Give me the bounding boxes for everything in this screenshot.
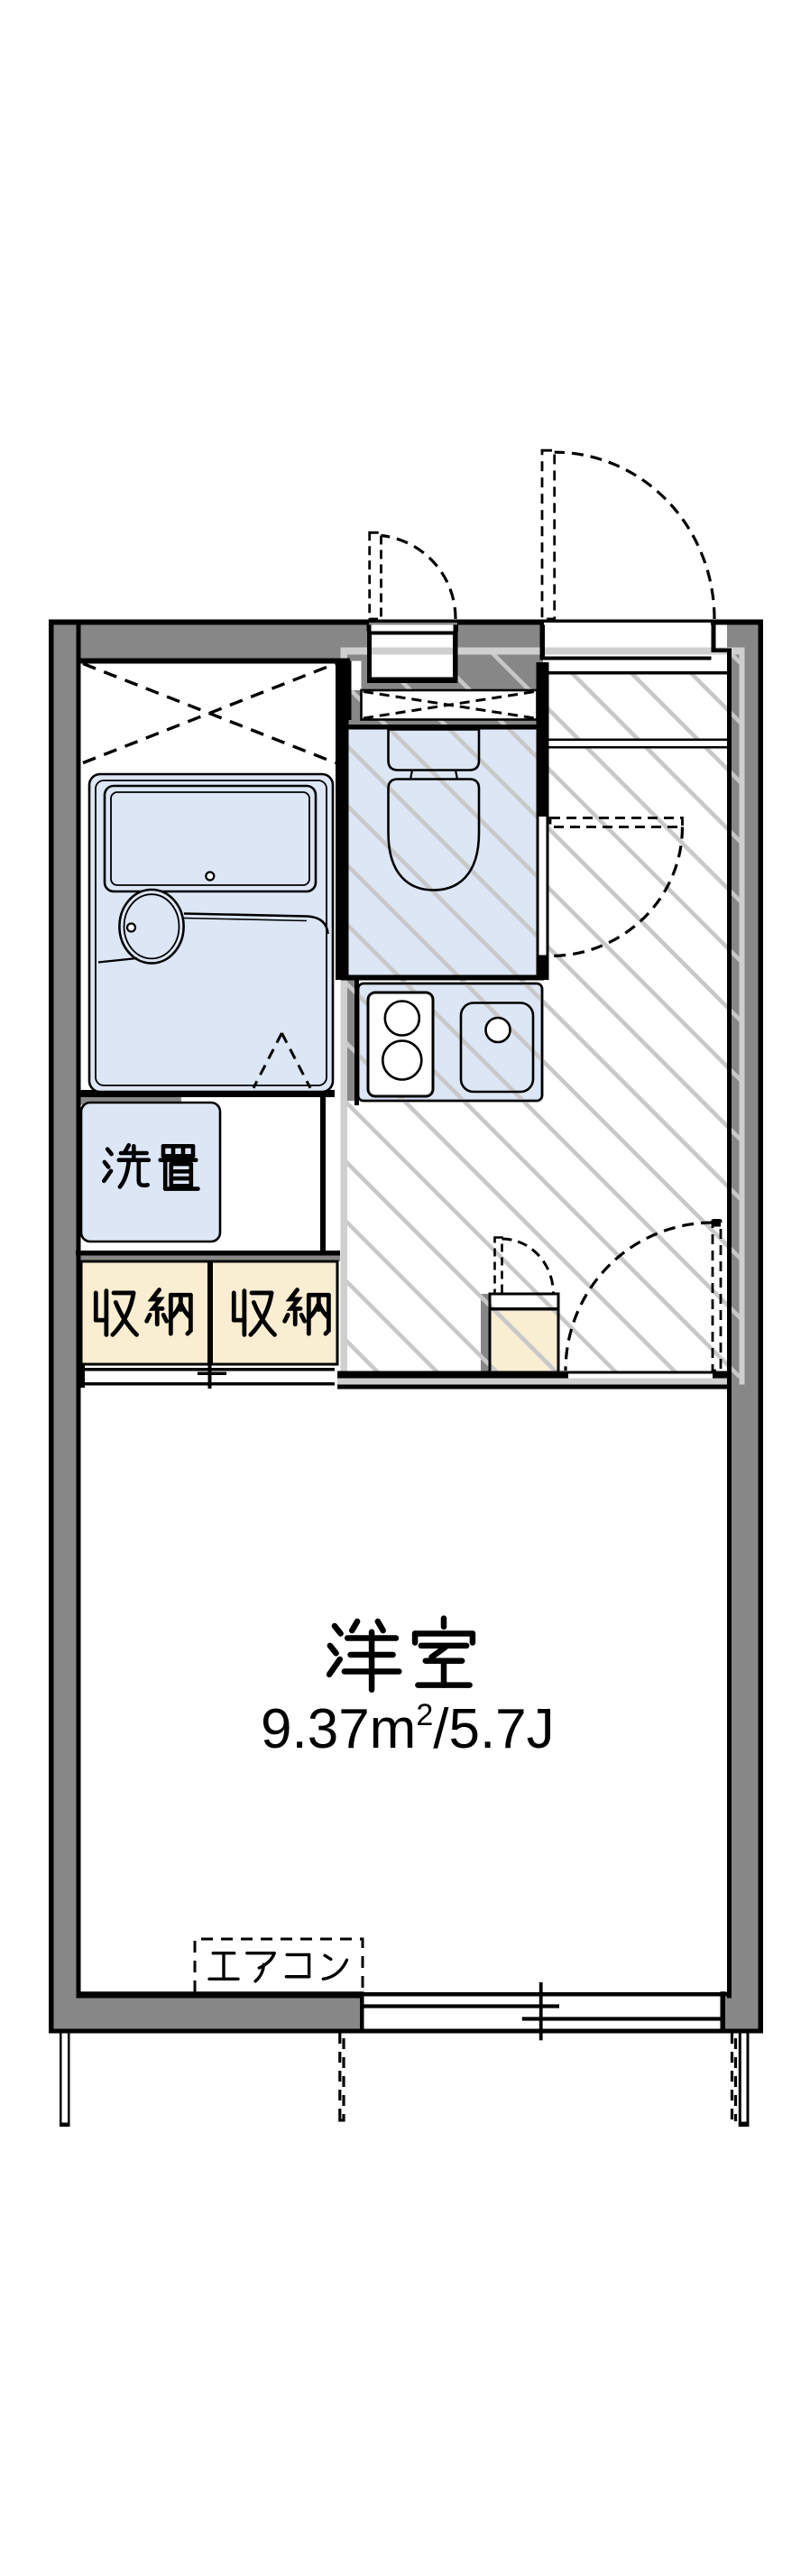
svg-text:9.37m2/5.7J: 9.37m2/5.7J [261, 1698, 555, 1760]
